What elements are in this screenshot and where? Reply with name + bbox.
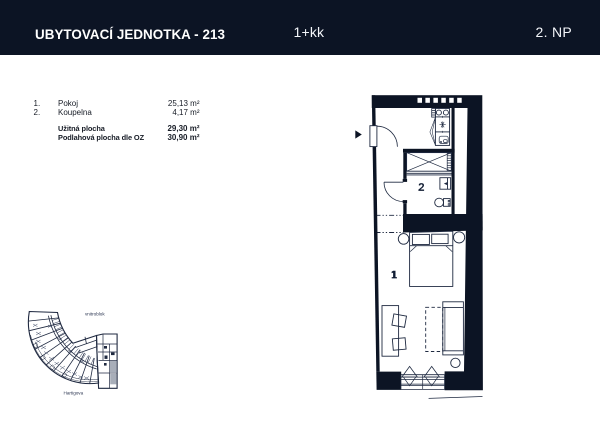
svg-text:Hartigova: Hartigova [64, 391, 84, 396]
svg-text:vnitroblok: vnitroblok [85, 311, 105, 316]
